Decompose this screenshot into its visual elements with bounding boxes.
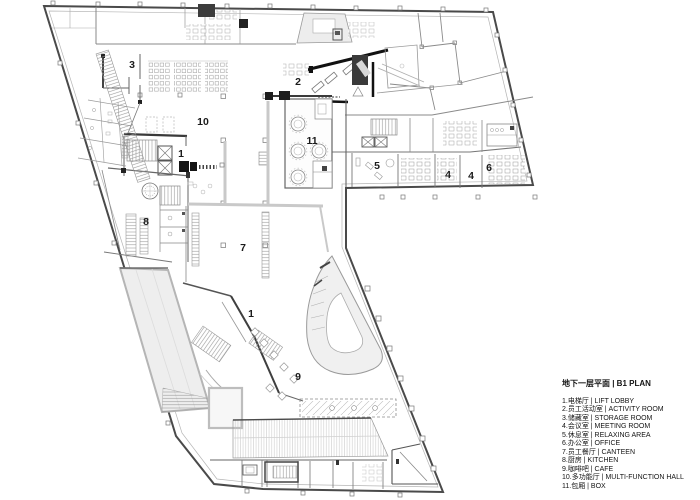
legend-item: 5.休息室 | RELAXING AREA: [562, 432, 700, 440]
legend-item: 2.员工活动室 | ACTIVITY ROOM: [562, 406, 700, 414]
legend-item: 8.厨房 | KITCHEN: [562, 457, 700, 465]
legend-item: 7.员工餐厅 | CANTEEN: [562, 449, 700, 457]
legend-title: 地下一层平面 | B1 PLAN: [562, 378, 700, 389]
floor-plan-page: 310121154468719 地下一层平面 | B1 PLAN 1.电梯厅 |…: [0, 0, 700, 500]
legend-item: 4.会议室 | MEETING ROOM: [562, 423, 700, 431]
legend-item: 10.多功能厅 | MULTI-FUNCTION HALL: [562, 474, 700, 482]
legend-item: 9.咖啡吧 | CAFE: [562, 466, 700, 474]
legend-item: 11.包厢 | BOX: [562, 483, 700, 491]
legend-item: 6.办公室 | OFFICE: [562, 440, 700, 448]
legend: 地下一层平面 | B1 PLAN 1.电梯厅 | LIFT LOBBY2.员工活…: [562, 378, 700, 491]
legend-items: 1.电梯厅 | LIFT LOBBY2.员工活动室 | ACTIVITY ROO…: [562, 398, 700, 491]
